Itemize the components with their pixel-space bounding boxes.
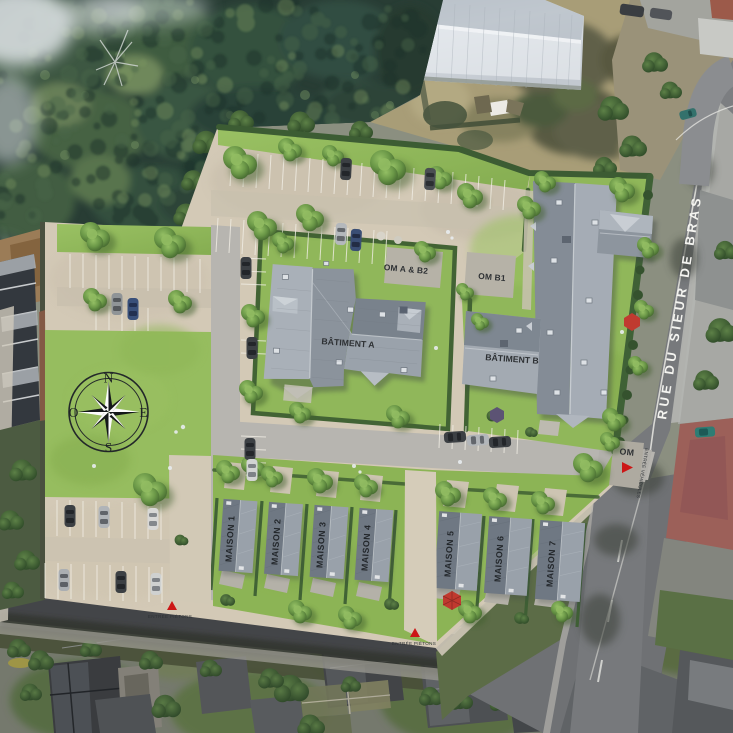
svg-text:OM: OM [619, 446, 635, 458]
svg-text:N: N [104, 371, 114, 386]
svg-text:ENTRÉE PIÉTONS: ENTRÉE PIÉTONS [148, 613, 192, 619]
svg-text:O: O [69, 405, 79, 420]
svg-text:S: S [105, 440, 113, 455]
svg-text:E: E [139, 405, 147, 420]
svg-text:ENTRÉE PIÉTONS: ENTRÉE PIÉTONS [392, 640, 436, 646]
